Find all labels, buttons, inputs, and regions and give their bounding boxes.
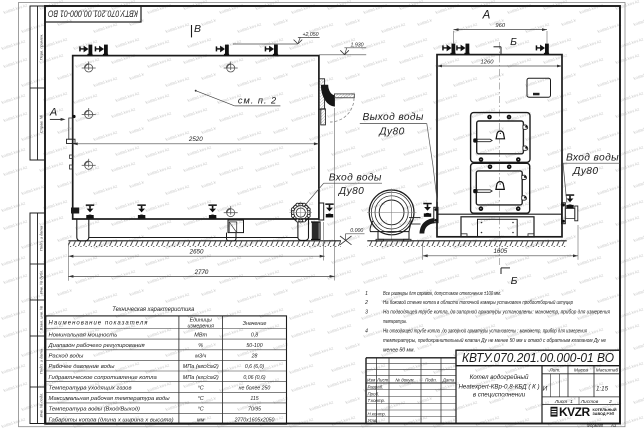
svg-text:Гидравлическое сопротивление к: Гидравлическое сопротивление котла [49, 375, 158, 381]
svg-text:Диапазон рабочего регулировани: Диапазон рабочего регулирования [48, 343, 146, 349]
svg-text:МПа (кгс/см2): МПа (кгс/см2) [183, 364, 219, 370]
svg-text:Проб.: Проб. [368, 391, 380, 396]
svg-text:70/95: 70/95 [248, 407, 261, 413]
svg-text:°С: °С [198, 396, 204, 402]
svg-text:Номинальная мощность: Номинальная мощность [49, 332, 118, 338]
svg-text:Лист: Лист [554, 399, 567, 405]
svg-text:2770х1605х2050: 2770х1605х2050 [234, 417, 275, 423]
svg-text:м3/ч: м3/ч [195, 354, 206, 360]
svg-text:А3: А3 [610, 423, 617, 428]
svg-text:ЗАВОД РЭП: ЗАВОД РЭП [593, 412, 615, 416]
svg-text:Т.контр.: Т.контр. [368, 398, 386, 403]
svg-text:Перв. примен.: Перв. примен. [39, 34, 44, 61]
svg-text:Изм: Изм [367, 377, 375, 382]
svg-text:Б: Б [510, 36, 517, 48]
svg-text:Б: Б [511, 275, 518, 287]
svg-text:KVZR: KVZR [559, 405, 591, 419]
svg-text:МВт: МВт [194, 332, 207, 338]
svg-text:На отводящей трубе котла ,до з: На отводящей трубе котла ,до запорной ар… [383, 328, 587, 335]
svg-text:°С: °С [198, 407, 204, 413]
svg-text:Инв. № подл.: Инв. № подл. [39, 393, 44, 418]
svg-text:На подводящей трубе котла, д: На подводящей трубе котла, до запорной а… [383, 309, 610, 316]
svg-text:И: И [543, 386, 548, 393]
svg-text:мм: мм [197, 417, 205, 423]
svg-text:Выход воды: Выход воды [363, 112, 424, 123]
svg-text:МПа (кгс/см2): МПа (кгс/см2) [183, 375, 219, 381]
svg-text:В: В [194, 23, 201, 35]
svg-text:А: А [49, 107, 57, 119]
svg-text:Подп.: Подп. [425, 377, 437, 382]
svg-text:Ду80: Ду80 [572, 166, 598, 177]
svg-text:КОТЕЛЬНЫЙ: КОТЕЛЬНЫЙ [593, 408, 617, 412]
svg-text:Температура уходящих газов: Температура уходящих газов [49, 386, 132, 392]
svg-text:Heatexpert-КВр-0,8-КБД ( К ): Heatexpert-КВр-0,8-КБД ( К ) [458, 384, 539, 391]
svg-text:Лит.: Лит. [548, 368, 560, 374]
svg-text:Температура воды (Вход/Выход): Температура воды (Вход/Выход) [49, 407, 140, 413]
svg-text:1:15: 1:15 [596, 386, 609, 393]
svg-text:КВТУ.070.201.00.000-01 ВО: КВТУ.070.201.00.000-01 ВО [48, 9, 138, 19]
svg-text:2520: 2520 [188, 136, 203, 143]
svg-text:4: 4 [365, 329, 368, 335]
svg-text:Н.контр.: Н.контр. [368, 412, 387, 417]
svg-text:0.000: 0.000 [350, 228, 363, 234]
svg-text:Вход воды: Вход воды [566, 153, 619, 164]
svg-text:Габариты котла (длина х ширина: Габариты котла (длина х ширина х высота) [49, 417, 174, 423]
svg-text:Утв.: Утв. [368, 418, 378, 423]
svg-text:Наименование показателя: Наименование показателя [49, 320, 149, 326]
svg-text:28: 28 [251, 354, 258, 360]
svg-text:Справ. №: Справ. № [39, 114, 44, 133]
svg-text:50-100: 50-100 [246, 343, 262, 349]
svg-text:Расход воды: Расход воды [49, 354, 85, 360]
svg-text:КВТУ.070.201.00.000-01 ВО: КВТУ.070.201.00.000-01 ВО [462, 351, 614, 365]
svg-text:Максимальная рабочая температу: Максимальная рабочая температура воды [49, 396, 171, 402]
svg-text:Разраб.: Разраб. [368, 385, 384, 390]
svg-text:1,930: 1,930 [351, 43, 364, 49]
svg-text:Масштаб: Масштаб [596, 368, 619, 374]
svg-text:Дата: Дата [442, 377, 455, 382]
svg-text:0,06 (0,6): 0,06 (0,6) [243, 375, 265, 381]
svg-text:Взам. инв. №: Взам. инв. № [39, 305, 44, 330]
svg-text:0,8: 0,8 [251, 332, 258, 338]
svg-text:Рабочее давление воды: Рабочее давление воды [49, 364, 116, 370]
svg-text:Инв. № дубл.: Инв. № дубл. [39, 270, 44, 295]
svg-text:Масса: Масса [574, 368, 589, 374]
svg-text:2: 2 [608, 399, 612, 405]
svg-text:115: 115 [250, 396, 258, 402]
svg-text:1: 1 [570, 399, 573, 405]
svg-text:1605: 1605 [493, 248, 507, 255]
svg-text:Подп. и дата: Подп. и дата [39, 225, 44, 251]
svg-text:см. п. 2: см. п. 2 [238, 96, 277, 106]
svg-text:Котел водогрейный: Котел водогрейный [470, 374, 529, 381]
svg-text:2: 2 [364, 300, 368, 306]
svg-text:№ докум.: № докум. [395, 377, 414, 382]
svg-text:2770: 2770 [194, 269, 209, 276]
svg-text:%: % [198, 343, 203, 349]
svg-text:Ду80: Ду80 [338, 186, 364, 197]
svg-text:менее 50 мм.: менее 50 мм. [383, 348, 415, 354]
svg-text:Ду80: Ду80 [378, 127, 404, 138]
svg-text:0,6 (6,0): 0,6 (6,0) [245, 364, 265, 370]
svg-text:Подп. и дата: Подп. и дата [39, 348, 44, 374]
svg-text:не более 250: не более 250 [239, 386, 271, 392]
svg-text:°С: °С [198, 386, 204, 392]
svg-text:На боковой стенке котла в обла: На боковой стенке котла в области топочн… [383, 299, 573, 306]
svg-text:Вход воды: Вход воды [329, 173, 382, 184]
svg-text:1: 1 [365, 291, 368, 297]
svg-text:температуры, предохранительный: температуры, предохранительный клапан Ду… [383, 337, 606, 344]
svg-text:А: А [482, 10, 491, 22]
svg-text:температуры.: температуры. [383, 319, 407, 325]
svg-text:Значение: Значение [243, 321, 267, 327]
svg-text:Листов: Листов [580, 399, 599, 405]
svg-text:2650: 2650 [189, 249, 204, 256]
svg-text:Лист: Лист [376, 377, 389, 382]
svg-text:960: 960 [495, 23, 505, 29]
svg-text:Формат: Формат [587, 423, 604, 428]
svg-text:3: 3 [365, 310, 368, 316]
svg-text:1260: 1260 [481, 60, 495, 66]
svg-text:измерения: измерения [187, 324, 214, 330]
svg-text:Все размеры для справок, допус: Все размеры для справок, допустимое откл… [383, 291, 501, 297]
svg-text:Техническая характеристика: Техническая характеристика [112, 307, 195, 313]
svg-text:+2,050: +2,050 [302, 32, 318, 38]
svg-text:в специсполнении: в специсполнении [473, 392, 526, 399]
